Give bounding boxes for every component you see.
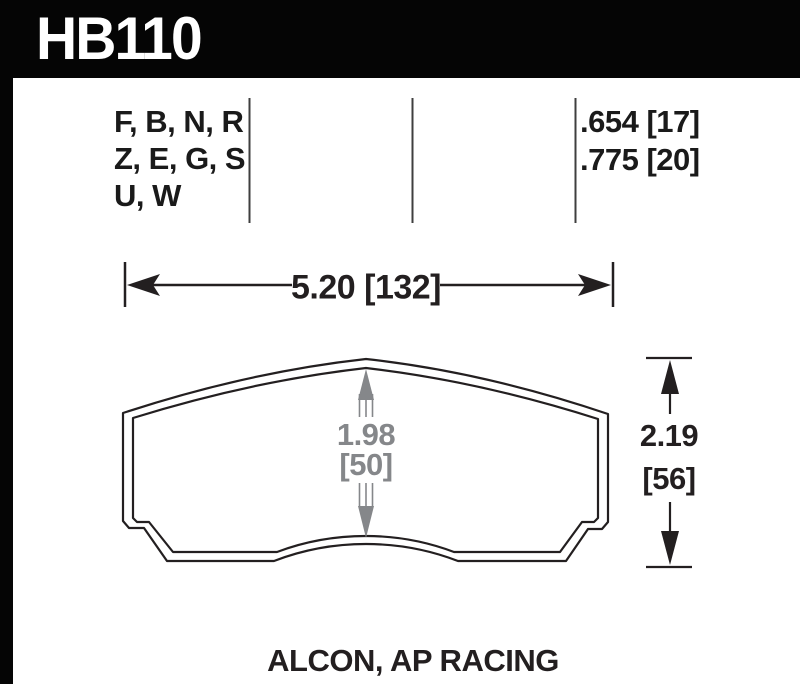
width-dimension-label: 5.20 [132]	[291, 269, 441, 308]
height-dimension-label: 2.19	[640, 418, 698, 454]
height-dimension-label-mm: [56]	[642, 461, 695, 497]
center-height-dimension-label-mm: [50]	[339, 447, 392, 483]
table-divider-lines	[250, 98, 576, 223]
diagram-linework	[0, 0, 800, 691]
applications-label: ALCON, AP RACING	[267, 643, 559, 679]
